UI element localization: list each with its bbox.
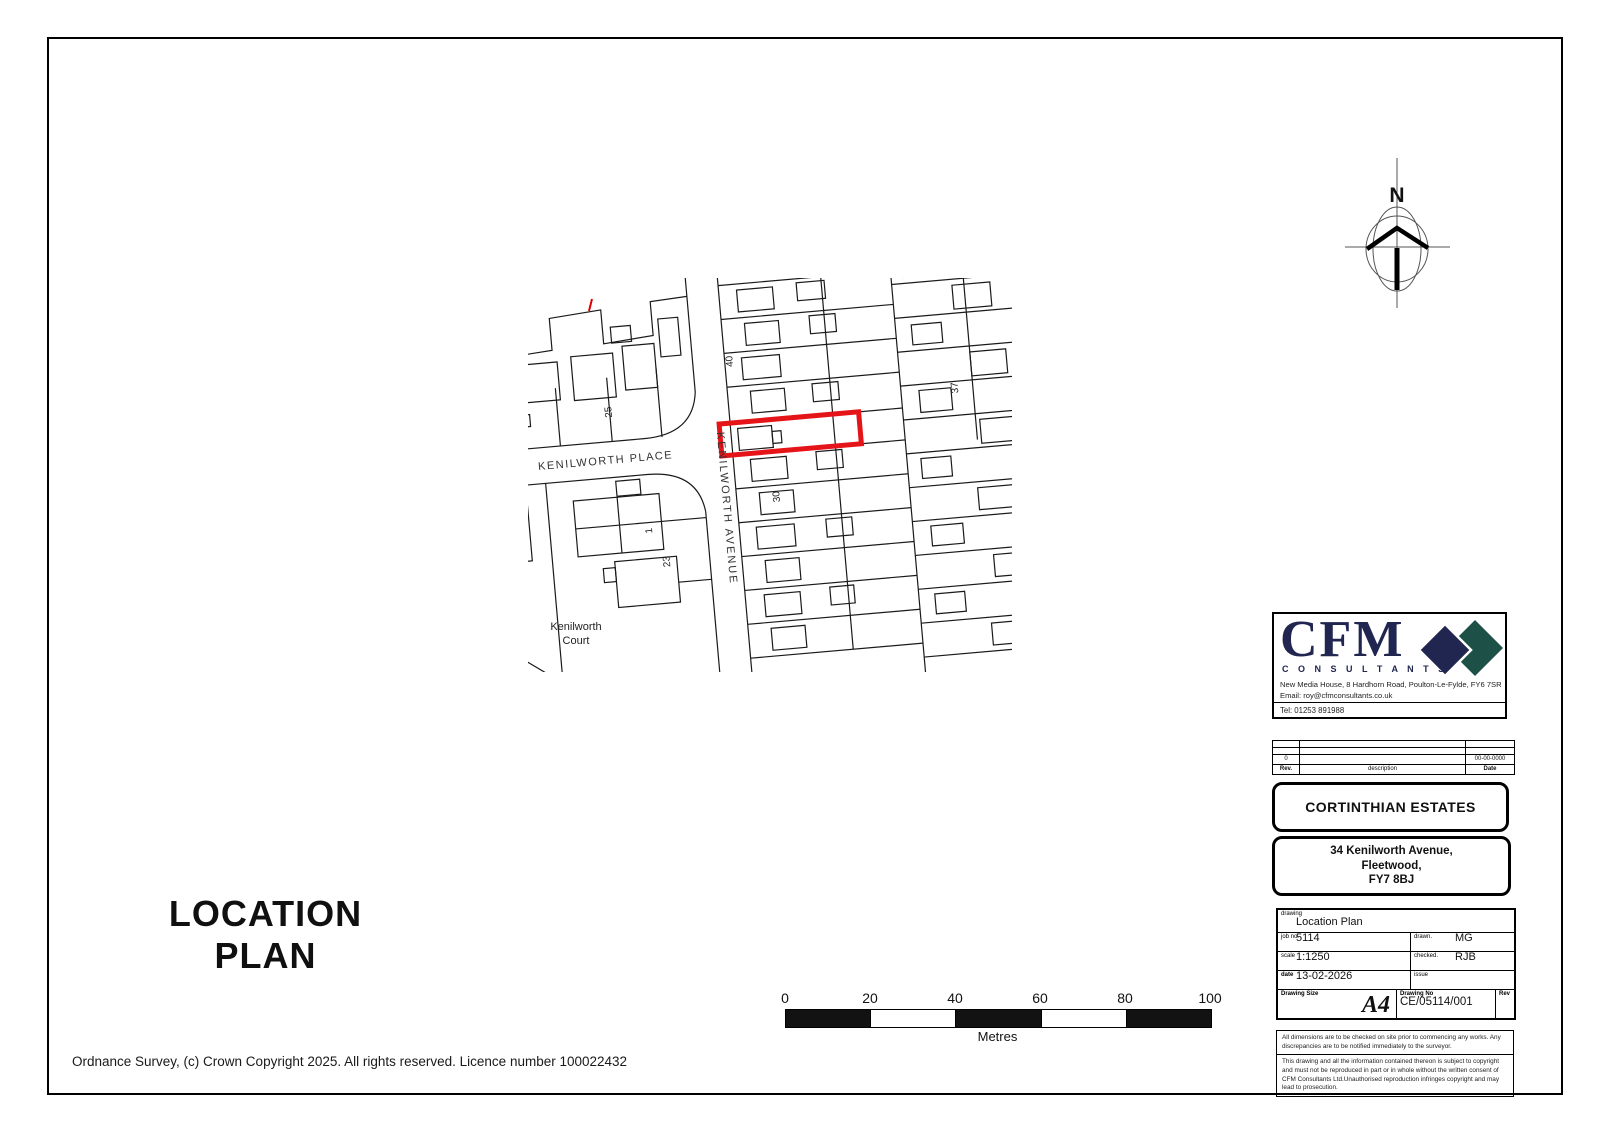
drawing-title-line2: PLAN — [113, 935, 418, 977]
client-name-box: CORTINTHIAN ESTATES — [1272, 782, 1509, 832]
revision-empty-row — [1273, 741, 1514, 747]
north-arrow: N — [1340, 150, 1455, 315]
disclaimer-copyright: This drawing and all the information con… — [1277, 1054, 1513, 1096]
house-number-1: 1 — [644, 527, 655, 534]
cfm-consultants-text: C O N S U L T A N T S — [1282, 664, 1448, 674]
map-north-block-boundary — [528, 296, 691, 362]
issue-label: issue — [1411, 971, 1514, 978]
location-map: 40 30 37 25 1 23 2 KENILWORTH PLACE KENI… — [528, 278, 1012, 672]
info-row-job-drawn: job no. 5114 drawn. MG — [1278, 932, 1514, 951]
house-number-40: 40 — [724, 355, 736, 367]
scale-value: 1:1250 — [1278, 951, 1410, 963]
house-number-25: 25 — [603, 406, 615, 418]
drawing-no-value: CE/05114/001 — [1397, 996, 1495, 1008]
kenilworth-court-label-line1: Kenilworth — [550, 621, 601, 633]
map-site-house — [738, 426, 774, 451]
revision-rev-value: 0 — [1273, 755, 1300, 764]
site-address-line2: Fleetwood, — [1361, 859, 1421, 874]
scale-bar-segment — [870, 1010, 956, 1027]
map-site-house-extension — [772, 431, 782, 444]
map-red-tick — [589, 299, 592, 311]
revision-col-rev: Rev. — [1273, 765, 1300, 774]
drawing-size-value: A4 — [1362, 992, 1390, 1019]
disclaimer-box: All dimensions are to be checked on site… — [1276, 1030, 1514, 1097]
scale-tick-100: 100 — [1198, 990, 1221, 1006]
scale-tick-40: 40 — [947, 990, 963, 1006]
scale-tick-60: 60 — [1032, 990, 1048, 1006]
map-court-detail-lines — [528, 490, 721, 672]
cfm-telephone: Tel: 01253 891988 — [1280, 706, 1344, 715]
scale-bar-segment — [1127, 1010, 1211, 1027]
revision-col-description: description — [1300, 765, 1465, 774]
rev-label: Rev — [1496, 990, 1514, 997]
site-address-line3: FY7 8BJ — [1369, 873, 1414, 888]
scale-bar-ticks: 0 20 40 60 80 100 — [785, 990, 1210, 1006]
cfm-logo-block: CFM C O N S U L T A N T S New Media Hous… — [1272, 612, 1507, 719]
cfm-address: New Media House, 8 Hardhorn Road, Poulto… — [1280, 680, 1502, 689]
scale-bar — [785, 1009, 1212, 1028]
street-label-kenilworth-place: KENILWORTH PLACE — [538, 449, 674, 473]
revision-description-value — [1300, 755, 1465, 764]
scale-tick-20: 20 — [862, 990, 878, 1006]
drawing-value: Location Plan — [1278, 916, 1514, 928]
client-name: CORTINTHIAN ESTATES — [1305, 799, 1475, 815]
revision-header-row: Rev. description Date — [1273, 764, 1514, 774]
map-plot-verticals — [528, 278, 1012, 672]
revision-table: 0 00-00-0000 Rev. description Date — [1272, 740, 1515, 775]
site-address-box: 34 Kenilworth Avenue, Fleetwood, FY7 8BJ — [1272, 836, 1511, 896]
revision-empty-row — [1273, 747, 1514, 754]
site-address-line1: 34 Kenilworth Avenue, — [1330, 844, 1452, 859]
info-row-date-issue: date 13-02-2026 issue — [1278, 970, 1514, 989]
os-copyright-text: Ordnance Survey, (c) Crown Copyright 202… — [72, 1054, 627, 1069]
scale-bar-segment — [786, 1010, 870, 1027]
scale-bar-unit: Metres — [785, 1029, 1210, 1044]
house-number-23: 23 — [661, 555, 673, 567]
kenilworth-court-label-line2: Court — [563, 635, 590, 647]
drawing-info-table: drawing Location Plan job no. 5114 drawn… — [1276, 908, 1516, 1020]
cfm-divider — [1274, 702, 1505, 703]
house-number-30: 30 — [771, 490, 783, 502]
drawing-title: LOCATION PLAN — [113, 893, 418, 978]
revision-col-date: Date — [1465, 765, 1514, 774]
scale-bar-segment — [956, 1010, 1040, 1027]
info-row-scale-checked: scale 1:1250 checked. RJB — [1278, 951, 1514, 970]
cfm-logo-text: CFM — [1280, 610, 1404, 669]
revision-date-value: 00-00-0000 — [1465, 755, 1514, 764]
drawing-title-line1: LOCATION — [113, 893, 418, 935]
info-row-drawing: drawing Location Plan — [1278, 910, 1514, 932]
info-row-size-number: Drawing Size A4 Drawing No CE/05114/001 … — [1278, 989, 1514, 1018]
cfm-email: Email: roy@cfmconsultants.co.uk — [1280, 691, 1392, 700]
scale-bar-segment — [1041, 1010, 1127, 1027]
disclaimer-dimensions: All dimensions are to be checked on site… — [1277, 1031, 1513, 1054]
job-no-value: 5114 — [1278, 932, 1410, 944]
house-number-37: 37 — [949, 381, 961, 393]
date-value: 13-02-2026 — [1278, 970, 1410, 982]
scale-tick-0: 0 — [781, 990, 789, 1006]
map-buildings-east — [735, 280, 863, 651]
scale-tick-80: 80 — [1117, 990, 1133, 1006]
map-buildings-far-east — [901, 278, 1012, 650]
north-label: N — [1389, 184, 1404, 207]
revision-row: 0 00-00-0000 — [1273, 754, 1514, 764]
